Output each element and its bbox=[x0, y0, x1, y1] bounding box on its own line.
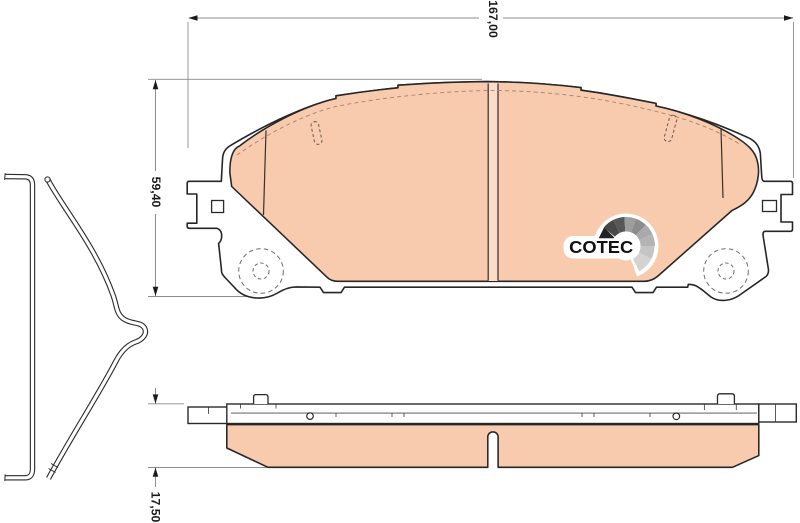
svg-text:59,40: 59,40 bbox=[149, 177, 163, 208]
svg-text:COTEC: COTEC bbox=[569, 237, 633, 257]
svg-text:17,50: 17,50 bbox=[149, 492, 163, 523]
svg-text:167,00: 167,00 bbox=[486, 0, 500, 38]
